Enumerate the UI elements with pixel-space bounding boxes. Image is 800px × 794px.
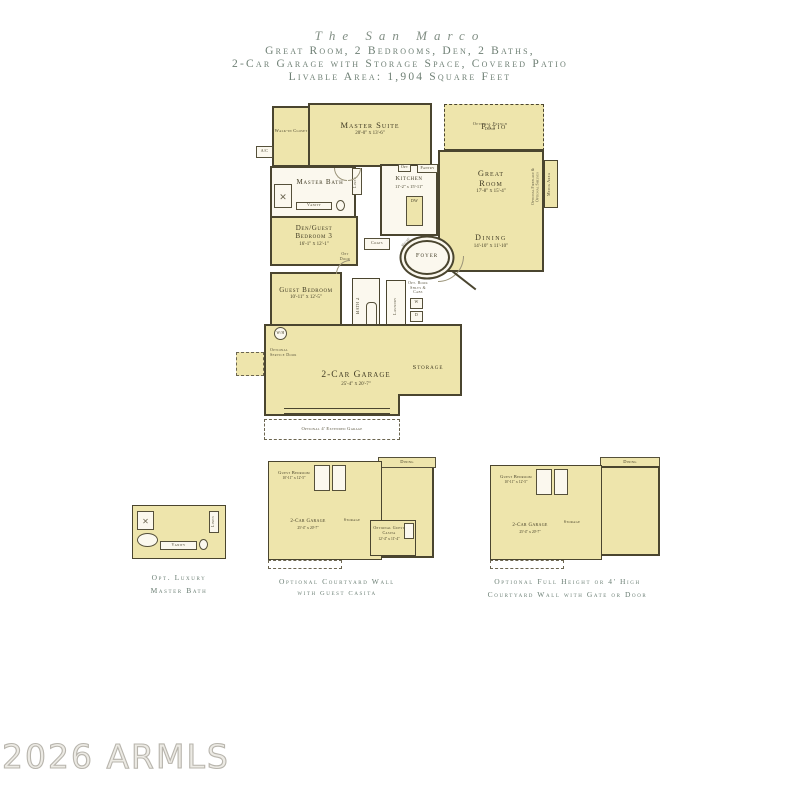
label-option3-garage: 2-Car Garage 25'-4" x 20'-7" xyxy=(502,523,558,534)
tub-icon xyxy=(137,533,158,547)
shower-icon: ✕ xyxy=(274,184,292,208)
label-master-suite: Master Suite 20'-0" x 13'-6" xyxy=(320,120,420,137)
option1-caption-line1: Opt. Luxury xyxy=(129,573,229,582)
label-option3-dining: Dining xyxy=(600,459,660,464)
dims-dining: 14'-10" x 11'-10" xyxy=(458,244,524,250)
label-option2-dining: Dining xyxy=(378,459,436,464)
plan-subtitle-1: Great Room, 2 Bedrooms, Den, 2 Baths, xyxy=(0,45,800,57)
armls-watermark: 2026 ARMLS xyxy=(2,737,230,776)
toilet-icon xyxy=(199,539,208,550)
label-guest-bedroom: Guest Bedroom 10'-11" x 12'-5" xyxy=(278,286,334,301)
label-water-heater: W/H xyxy=(274,331,287,335)
option2-laundry-nook xyxy=(332,465,346,491)
label-storage: Storage xyxy=(400,364,456,372)
plan-subtitle-2: 2-Car Garage with Storage Space, Covered… xyxy=(0,58,800,70)
option3-bath-nook xyxy=(536,469,552,495)
option1-caption-line2: Master Bath xyxy=(129,586,229,595)
plan-title: The San Marco xyxy=(0,28,800,44)
option3-courtyard xyxy=(602,466,660,556)
label-washer: W xyxy=(410,300,423,305)
label-service-door: Optional Service Door xyxy=(270,348,300,358)
dims-guest-bedroom: 10'-11" x 12'-5" xyxy=(278,295,334,301)
label-opt-book: Opt. Book Shlvs & Cabs xyxy=(408,281,428,295)
label-coats: Coats xyxy=(364,241,390,246)
entry-wall xyxy=(451,270,476,290)
shower-icon: ✕ xyxy=(137,511,154,530)
dims-great-room: 17'-8" x 15'-4" xyxy=(466,189,516,195)
option3-caption-line2: Courtyard Wall with Gate or Door xyxy=(460,590,675,599)
option3-extended-garage xyxy=(490,560,564,569)
option2-casita-bath xyxy=(404,523,414,539)
floor-plan-sheet: The San Marco Great Room, 2 Bedrooms, De… xyxy=(0,0,800,794)
label-option2-storage: Storage xyxy=(334,518,370,523)
label-great-room: Great Room 17'-8" x 15'-4" xyxy=(466,168,516,195)
option3-caption-line1: Optional Full Height or 4' High xyxy=(460,577,675,586)
label-laundry: Laundry xyxy=(392,288,397,324)
label-media-area: Media Area xyxy=(547,165,552,203)
label-option3-guest-bedroom: Guest Bedroom 10'-11" x 12'-5" xyxy=(494,474,538,485)
label-option3-storage: Storage xyxy=(554,520,590,525)
label-option1-linen: Linen xyxy=(211,513,216,531)
label-fireplace-note: Optional Fireplace & Optional Shelves xyxy=(531,163,540,211)
label-kitchen: Kitchen 11'-2" x 15'-11" xyxy=(384,175,434,189)
label-master-bath: Master Bath xyxy=(294,178,346,186)
dims-master-suite: 20'-0" x 13'-6" xyxy=(320,131,420,137)
label-dishwasher: DW xyxy=(406,199,423,204)
label-opt: Opt xyxy=(398,165,411,170)
option3-laundry-nook xyxy=(554,469,568,495)
option2-caption-line1: Optional Courtyard Wall xyxy=(252,577,422,586)
dims-den: 16'-1" x 12'-1" xyxy=(286,242,342,248)
option2-caption-line2: with Guest Casita xyxy=(252,590,422,597)
label-ac: A/C xyxy=(256,149,273,154)
label-option2-guest-bedroom: Guest Bedroom 10'-11" x 12'-5" xyxy=(272,470,316,481)
label-option1-vanity: Vanity xyxy=(160,543,197,548)
label-bath2: Bath 2 xyxy=(356,288,362,324)
dims-garage: 25'-4" x 20'-7" xyxy=(286,382,426,388)
toilet-icon xyxy=(336,200,345,211)
label-dryer: D xyxy=(410,313,423,318)
option2-extended-garage xyxy=(268,560,342,569)
label-pantry: Pantry xyxy=(417,166,438,171)
label-den: Den/Guest Bedroom 3 16'-1" x 12'-1" xyxy=(286,224,342,248)
label-vanity: Vanity xyxy=(296,203,332,208)
label-option2-casita: Optional Guest Casita 12'-4" x 11'-4" xyxy=(372,526,406,541)
dims-kitchen: 11'-2" x 15'-11" xyxy=(384,184,434,189)
room-guest-bedroom xyxy=(270,272,342,332)
plan-subtitle-3: Livable Area: 1,904 Square Feet xyxy=(0,71,800,83)
label-dining: Dining 14'-10" x 11'-10" xyxy=(458,233,524,250)
label-optional-french-door: Optional French Door xyxy=(468,121,512,132)
label-garage: 2-Car Garage 25'-4" x 20'-7" xyxy=(286,370,426,388)
label-option2-garage: 2-Car Garage 25'-4" x 20'-7" xyxy=(280,519,336,530)
garage-notch xyxy=(398,394,462,416)
garage-door xyxy=(284,408,390,414)
label-walk-in-closet: Walk-in Closet xyxy=(274,128,308,133)
option2-bath-nook xyxy=(314,465,330,491)
label-extended-garage: Optional 4' Extended Garage xyxy=(268,426,396,431)
room-walk-in-closet xyxy=(272,106,310,167)
service-door-stoop xyxy=(236,352,264,376)
